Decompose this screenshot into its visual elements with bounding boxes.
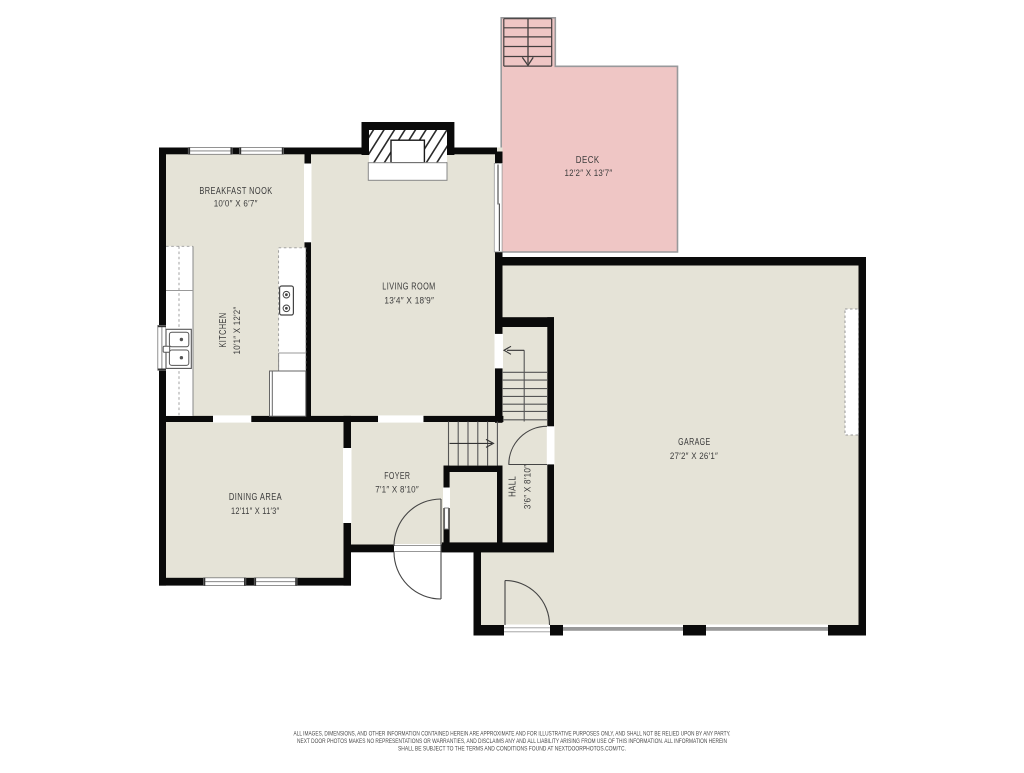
svg-text:13′4″ X 18′9″: 13′4″ X 18′9″ [384, 296, 434, 307]
svg-text:27′2″ X 26′1″: 27′2″ X 26′1″ [670, 451, 719, 462]
svg-text:NEXT DOOR PHOTOS MAKES NO REPR: NEXT DOOR PHOTOS MAKES NO REPRESENTATION… [297, 738, 727, 745]
svg-text:7′1″ X 8′10″: 7′1″ X 8′10″ [375, 485, 419, 496]
svg-text:ALL IMAGES, DIMENSIONS, AND OT: ALL IMAGES, DIMENSIONS, AND OTHER INFORM… [294, 730, 731, 737]
svg-text:LIVING ROOM: LIVING ROOM [382, 282, 435, 293]
svg-text:3′6″ X 8′10″: 3′6″ X 8′10″ [523, 464, 534, 509]
svg-text:FOYER: FOYER [384, 471, 410, 482]
svg-text:GARAGE: GARAGE [678, 437, 711, 448]
svg-text:BREAKFAST NOOK: BREAKFAST NOOK [199, 186, 272, 197]
svg-text:12′11″ X 11′3″: 12′11″ X 11′3″ [231, 506, 280, 517]
svg-text:HALL: HALL [508, 476, 519, 497]
svg-text:10′0″ X 6′7″: 10′0″ X 6′7″ [214, 198, 258, 209]
svg-text:10′1″ X 12′2″: 10′1″ X 12′2″ [232, 306, 243, 354]
svg-text:SHALL BE SUBJECT TO THE TERMS: SHALL BE SUBJECT TO THE TERMS AND CONDIT… [398, 745, 626, 752]
svg-text:12′2″ X 13′7″: 12′2″ X 13′7″ [565, 168, 613, 179]
svg-text:DECK: DECK [576, 155, 600, 166]
svg-text:KITCHEN: KITCHEN [218, 312, 229, 347]
svg-text:DINING AREA: DINING AREA [229, 492, 282, 503]
